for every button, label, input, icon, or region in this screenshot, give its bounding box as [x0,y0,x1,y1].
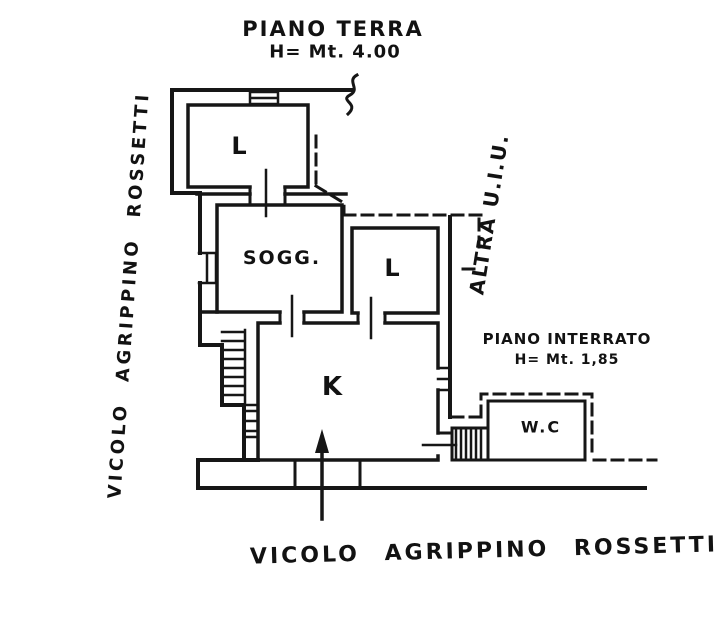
hatched-passage [452,428,488,460]
ground-floor-height: H= Mt. 4.00 [269,42,400,63]
left-wall-window [199,253,216,283]
floor-plan-page: PIANO TERRA H= Mt. 4.00 PIANO INTERRATO … [0,0,718,644]
room-label-l2: L [384,254,399,282]
basement-height: H= Mt. 1,85 [515,352,620,368]
room-label-wc: W.C [521,418,561,437]
room-label-l1: L [231,132,246,160]
door-cross-marks [266,170,456,445]
staircase [222,330,245,403]
room-k-walls [258,323,438,460]
room-label-kitchen: K [322,372,342,402]
entrance-arrow [315,429,329,519]
room-label-soggiorno: SOGG. [243,247,321,269]
basement-caption: PIANO INTERRATO [483,330,652,348]
wall-break-squiggle [347,75,357,114]
top-window [250,92,278,104]
ground-floor-caption: PIANO TERRA [242,17,423,41]
k-left-window [244,405,258,437]
room-l1-walls [188,105,308,187]
